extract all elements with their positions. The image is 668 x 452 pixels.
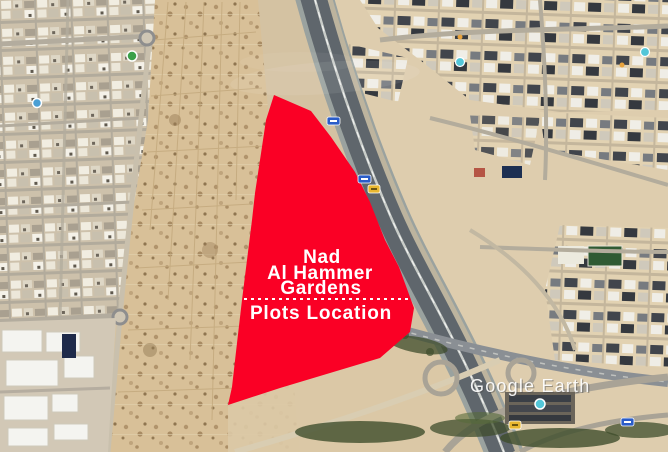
poi-marker-teal-icon <box>456 58 465 67</box>
route-shield-yellow-icon <box>509 421 521 429</box>
poi-dot-orange-icon <box>458 35 463 40</box>
route-shield-blue-icon <box>327 117 340 125</box>
satellite-map: Nad Al Hammer Gardens Plots Location <box>0 0 668 452</box>
plot-title-line3: Gardens <box>280 278 361 299</box>
poi-dot-orange-icon <box>620 63 625 68</box>
route-shield-blue-icon <box>621 418 634 426</box>
dark-warehouse-roof <box>62 334 76 358</box>
route-shield-blue-icon <box>358 175 371 183</box>
poi-marker-blue-icon <box>33 99 42 108</box>
google-earth-watermark-text: Google Earth <box>470 376 590 396</box>
google-earth-watermark: Google Earth Google Earth <box>470 376 592 397</box>
plot-subtitle: Plots Location <box>250 303 392 324</box>
poi-marker-teal-icon <box>535 399 545 409</box>
satellite-map-image: Nad Al Hammer Gardens Plots Location <box>0 0 668 452</box>
poi-marker-green-icon <box>127 51 137 61</box>
red-roof-building <box>474 168 485 177</box>
navy-roof-building <box>502 166 522 178</box>
industrial-area-southwest <box>0 318 116 452</box>
route-shield-yellow-icon <box>368 185 380 193</box>
poi-marker-teal-icon <box>641 48 650 57</box>
